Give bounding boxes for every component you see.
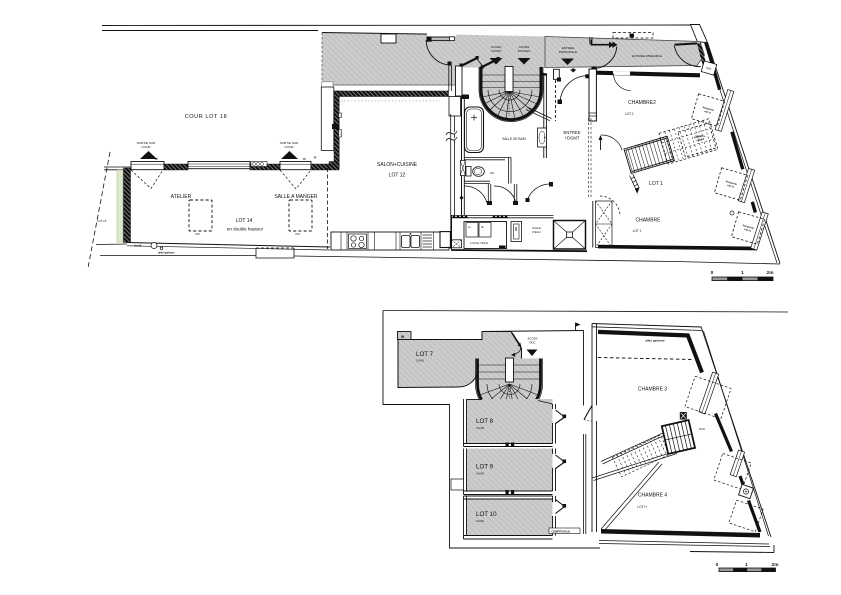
svg-text:2m: 2m: [772, 562, 779, 568]
svg-text:2m: 2m: [767, 270, 774, 276]
svg-text:CHAMBRE2: CHAMBRE2: [628, 100, 656, 106]
svg-text:DG#J: DG#J: [699, 429, 705, 431]
svg-text:1: 1: [741, 270, 744, 276]
svg-text:CHAMBRE: CHAMBRE: [635, 218, 661, 224]
svg-text:en double hauteur: en double hauteur: [227, 227, 264, 232]
svg-text:LOT 8: LOT 8: [476, 418, 494, 425]
svg-text:COMPTEUR (A): COMPTEUR (A): [552, 530, 571, 533]
svg-text:+DGMT: +DGMT: [565, 136, 580, 141]
svg-text:ETAGES: ETAGES: [518, 49, 530, 53]
svg-text:LOCAL TECH.: LOCAL TECH.: [470, 241, 489, 245]
svg-text:COUR: COUR: [284, 145, 294, 149]
svg-text:1P: 1P: [303, 159, 306, 161]
svg-text:LOT 14: LOT 14: [236, 218, 253, 224]
svg-text:PRINCIPALE: PRINCIPALE: [559, 50, 577, 54]
svg-text:CHAMBRE 3: CHAMBRE 3: [638, 387, 667, 393]
svg-text:table: table: [195, 233, 201, 236]
svg-text:LOT 10: LOT 10: [476, 511, 497, 518]
svg-text:1: 1: [745, 562, 748, 568]
svg-text:CAVE: CAVE: [476, 426, 484, 430]
svg-text:SALLE A MANGER: SALLE A MANGER: [274, 194, 317, 200]
svg-text:LL.: LL.: [468, 226, 472, 229]
svg-text:COUR LOT 18: COUR LOT 18: [185, 114, 228, 120]
svg-text:LOT H: LOT H: [637, 505, 647, 509]
svg-text:COUR: COUR: [141, 145, 151, 149]
svg-text:CAVE: CAVE: [476, 519, 484, 523]
svg-text:SALLE DE BAIN: SALLE DE BAIN: [502, 137, 526, 141]
svg-text:WC: WC: [490, 171, 495, 175]
svg-text:LOT 9: LOT 9: [476, 464, 494, 471]
svg-text:table: table: [295, 233, 301, 236]
svg-text:CAVE: CAVE: [416, 359, 424, 363]
svg-text:1P: 1P: [314, 158, 317, 160]
svg-text:ATELIER: ATELIER: [171, 194, 192, 200]
svg-text:LOT 1: LOT 1: [649, 181, 663, 187]
svg-text:1P: 1P: [155, 159, 158, 161]
svg-text:ENTREE IMMEUBLE: ENTREE IMMEUBLE: [632, 54, 662, 58]
svg-text:0: 0: [711, 270, 714, 276]
svg-text:SALON+CUISINE: SALON+CUISINE: [377, 162, 418, 168]
svg-text:LOT 12: LOT 12: [389, 173, 406, 179]
svg-text:CAVE: CAVE: [476, 472, 484, 476]
svg-text:allée garberie: allée garberie: [158, 251, 175, 255]
svg-text:RDC: RDC: [529, 341, 535, 345]
svg-text:0: 0: [716, 562, 719, 568]
svg-text:CHAMBRE 4: CHAMBRE 4: [638, 493, 667, 499]
svg-text:LOT 15: LOT 15: [97, 219, 107, 223]
svg-text:LOT 1: LOT 1: [633, 229, 642, 233]
svg-text:LOT 1: LOT 1: [625, 112, 634, 116]
svg-text:D'EAU: D'EAU: [532, 230, 540, 234]
svg-text:CAVES: CAVES: [491, 49, 501, 53]
svg-text:chauff.: chauff.: [134, 245, 142, 248]
svg-text:allée garberie: allée garberie: [645, 339, 665, 343]
svg-text:SL.: SL.: [481, 226, 485, 229]
svg-text:ENTREE: ENTREE: [564, 130, 581, 135]
svg-text:LOT 7: LOT 7: [416, 351, 434, 358]
